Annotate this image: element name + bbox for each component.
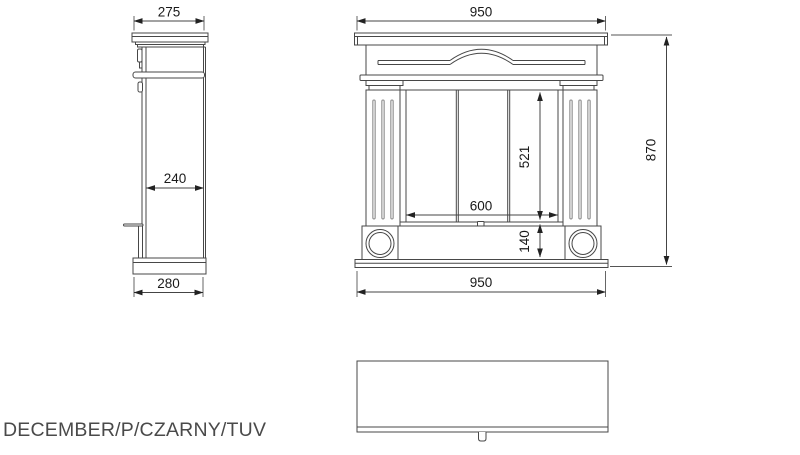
door-divider-right bbox=[508, 90, 510, 222]
under-shelf-band bbox=[360, 75, 603, 81]
shelf-rail-side bbox=[133, 72, 205, 78]
technical-drawing: 275 240 280 bbox=[0, 0, 800, 450]
dim-side-base-depth: 280 bbox=[134, 276, 203, 297]
plinth-strip-side bbox=[139, 226, 143, 258]
dim-text-275: 275 bbox=[158, 5, 181, 20]
corbel-top-step bbox=[140, 62, 143, 68]
dim-front-top-width: 950 bbox=[357, 5, 606, 31]
mantel-shelf-front bbox=[355, 33, 608, 45]
capital-left-step bbox=[369, 86, 400, 91]
dim-text-240: 240 bbox=[164, 171, 187, 186]
dim-text-280: 280 bbox=[157, 276, 180, 291]
door-divider-left bbox=[456, 90, 458, 222]
body-outline-side bbox=[138, 47, 206, 258]
dim-side-body-depth: 240 bbox=[147, 171, 204, 188]
front-view bbox=[355, 33, 609, 268]
dim-plinth-height: 140 bbox=[517, 225, 540, 258]
side-view bbox=[124, 33, 209, 274]
plan-tab bbox=[479, 432, 487, 441]
dim-total-height: 870 bbox=[610, 35, 672, 267]
dim-text-870: 870 bbox=[644, 139, 659, 162]
corbel-top-side bbox=[138, 49, 143, 62]
dim-text-950-bottom: 950 bbox=[470, 275, 493, 290]
corbel-bottom-side bbox=[138, 82, 143, 92]
plan-outline bbox=[357, 361, 608, 432]
dim-front-base-width: 950 bbox=[357, 271, 606, 297]
bottom-view bbox=[357, 361, 608, 441]
dim-text-521: 521 bbox=[517, 146, 532, 169]
product-label: DECEMBER/P/CZARNY/TUV bbox=[3, 419, 266, 442]
mantel-shelf-side bbox=[132, 33, 208, 42]
dim-side-top-depth: 275 bbox=[134, 5, 204, 31]
dim-text-950-top: 950 bbox=[470, 5, 493, 20]
capital-left bbox=[366, 81, 403, 86]
capital-right-step bbox=[563, 86, 594, 91]
base-side bbox=[133, 258, 206, 274]
door-latch bbox=[478, 222, 485, 227]
dim-text-600: 600 bbox=[470, 199, 493, 214]
dim-text-140: 140 bbox=[517, 230, 532, 253]
capital-right bbox=[560, 81, 597, 86]
